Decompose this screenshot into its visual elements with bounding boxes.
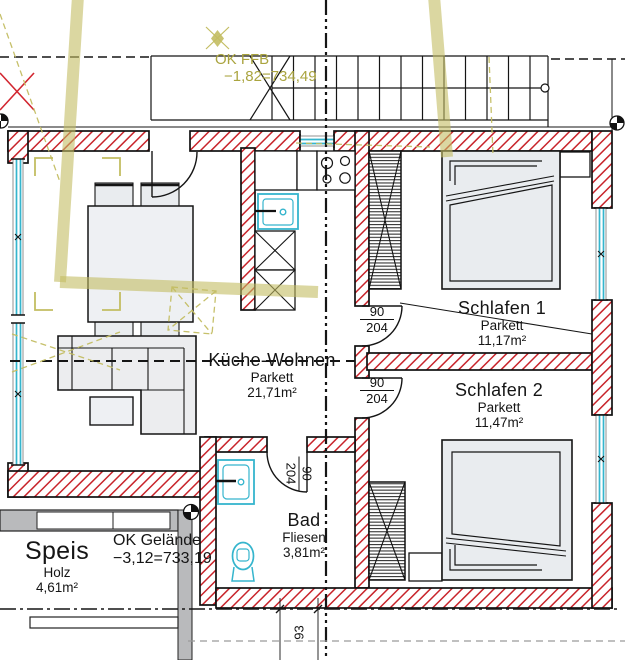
window-left-2 [11,323,25,465]
survey-marker-icon [184,505,199,520]
room-area: 21,71m² [208,385,335,400]
wardrobe-schlafen2 [369,482,405,580]
room-floor: Parkett [208,370,335,385]
wardrobe-schlafen1 [369,151,401,289]
window-left-1 [11,159,25,315]
nightstand-schlafen2 [409,553,442,581]
room-name: Schlafen 2 [455,380,543,400]
room-label-kueche-wohnen: Küche-Wohnen Parkett 21,71m² [208,350,335,400]
toilet [232,543,254,582]
bed-schlafen1 [442,151,560,289]
dining-table [88,206,193,322]
washbasin [216,460,254,504]
survey-marker-icon [610,116,624,130]
tall-cabinets [255,231,295,310]
room-name: Bad [282,510,326,530]
floorplan: Küche-Wohnen Parkett 21,71m² Schlafen 1 … [0,0,625,660]
stair-rail-end [541,84,549,92]
red-x-mark [0,73,34,110]
door-height: 204 [360,390,394,406]
room-floor: Fliesen [282,530,326,545]
door-width: 90 [360,304,394,319]
door-height: 204 [284,457,300,491]
door-width: 90 [300,457,315,491]
dim-bottom-width: 93 [292,625,307,639]
room-name: Speis [25,537,89,565]
level-value: −3,12=733,19 [113,550,212,568]
dining-set [88,183,193,346]
room-area: 3,81m² [282,545,326,560]
door-dim-schlafen2: 90 204 [360,375,394,406]
room-floor: Parkett [455,400,543,415]
room-label-speis: Speis Holz 4,61m² [25,537,89,595]
level-note-gelaende: OK Gelände −3,12=733,19 [113,532,212,568]
stove [317,151,355,190]
room-area: 11,47m² [455,415,543,430]
sofa [58,336,196,434]
nightstand-schlafen1 [560,152,590,177]
door-height: 204 [360,319,394,335]
survey-marker-icon [0,114,8,128]
room-floor: Parkett [458,318,546,333]
bath-fixtures [216,460,254,581]
room-floor: Holz [25,565,89,580]
room-name: Schlafen 1 [458,298,546,318]
room-label-schlafen2: Schlafen 2 Parkett 11,47m² [455,380,543,430]
room-name: Küche-Wohnen [208,350,335,370]
door-width: 90 [360,375,394,390]
door-dim-bad: 90 204 [284,457,315,491]
level-label: OK Gelände [113,532,212,550]
level-value: −1,82=734,49 [224,68,317,85]
coffee-table [90,397,133,425]
kitchen-sink [255,194,298,229]
window-top [300,134,334,148]
survey-symbol-icon [206,27,229,49]
room-area: 11,17m² [458,333,546,348]
window-right-2 [594,415,608,503]
bed-schlafen2 [442,440,572,580]
level-label: OK FFB [215,51,317,68]
level-note-ffb: OK FFB −1,82=734,49 [215,51,317,85]
room-area: 4,61m² [25,580,89,595]
door-dim-schlafen1: 90 204 [360,304,394,335]
room-label-bad: Bad Fliesen 3,81m² [282,510,326,560]
room-label-schlafen1: Schlafen 1 Parkett 11,17m² [458,298,546,348]
window-right-1 [594,208,608,300]
